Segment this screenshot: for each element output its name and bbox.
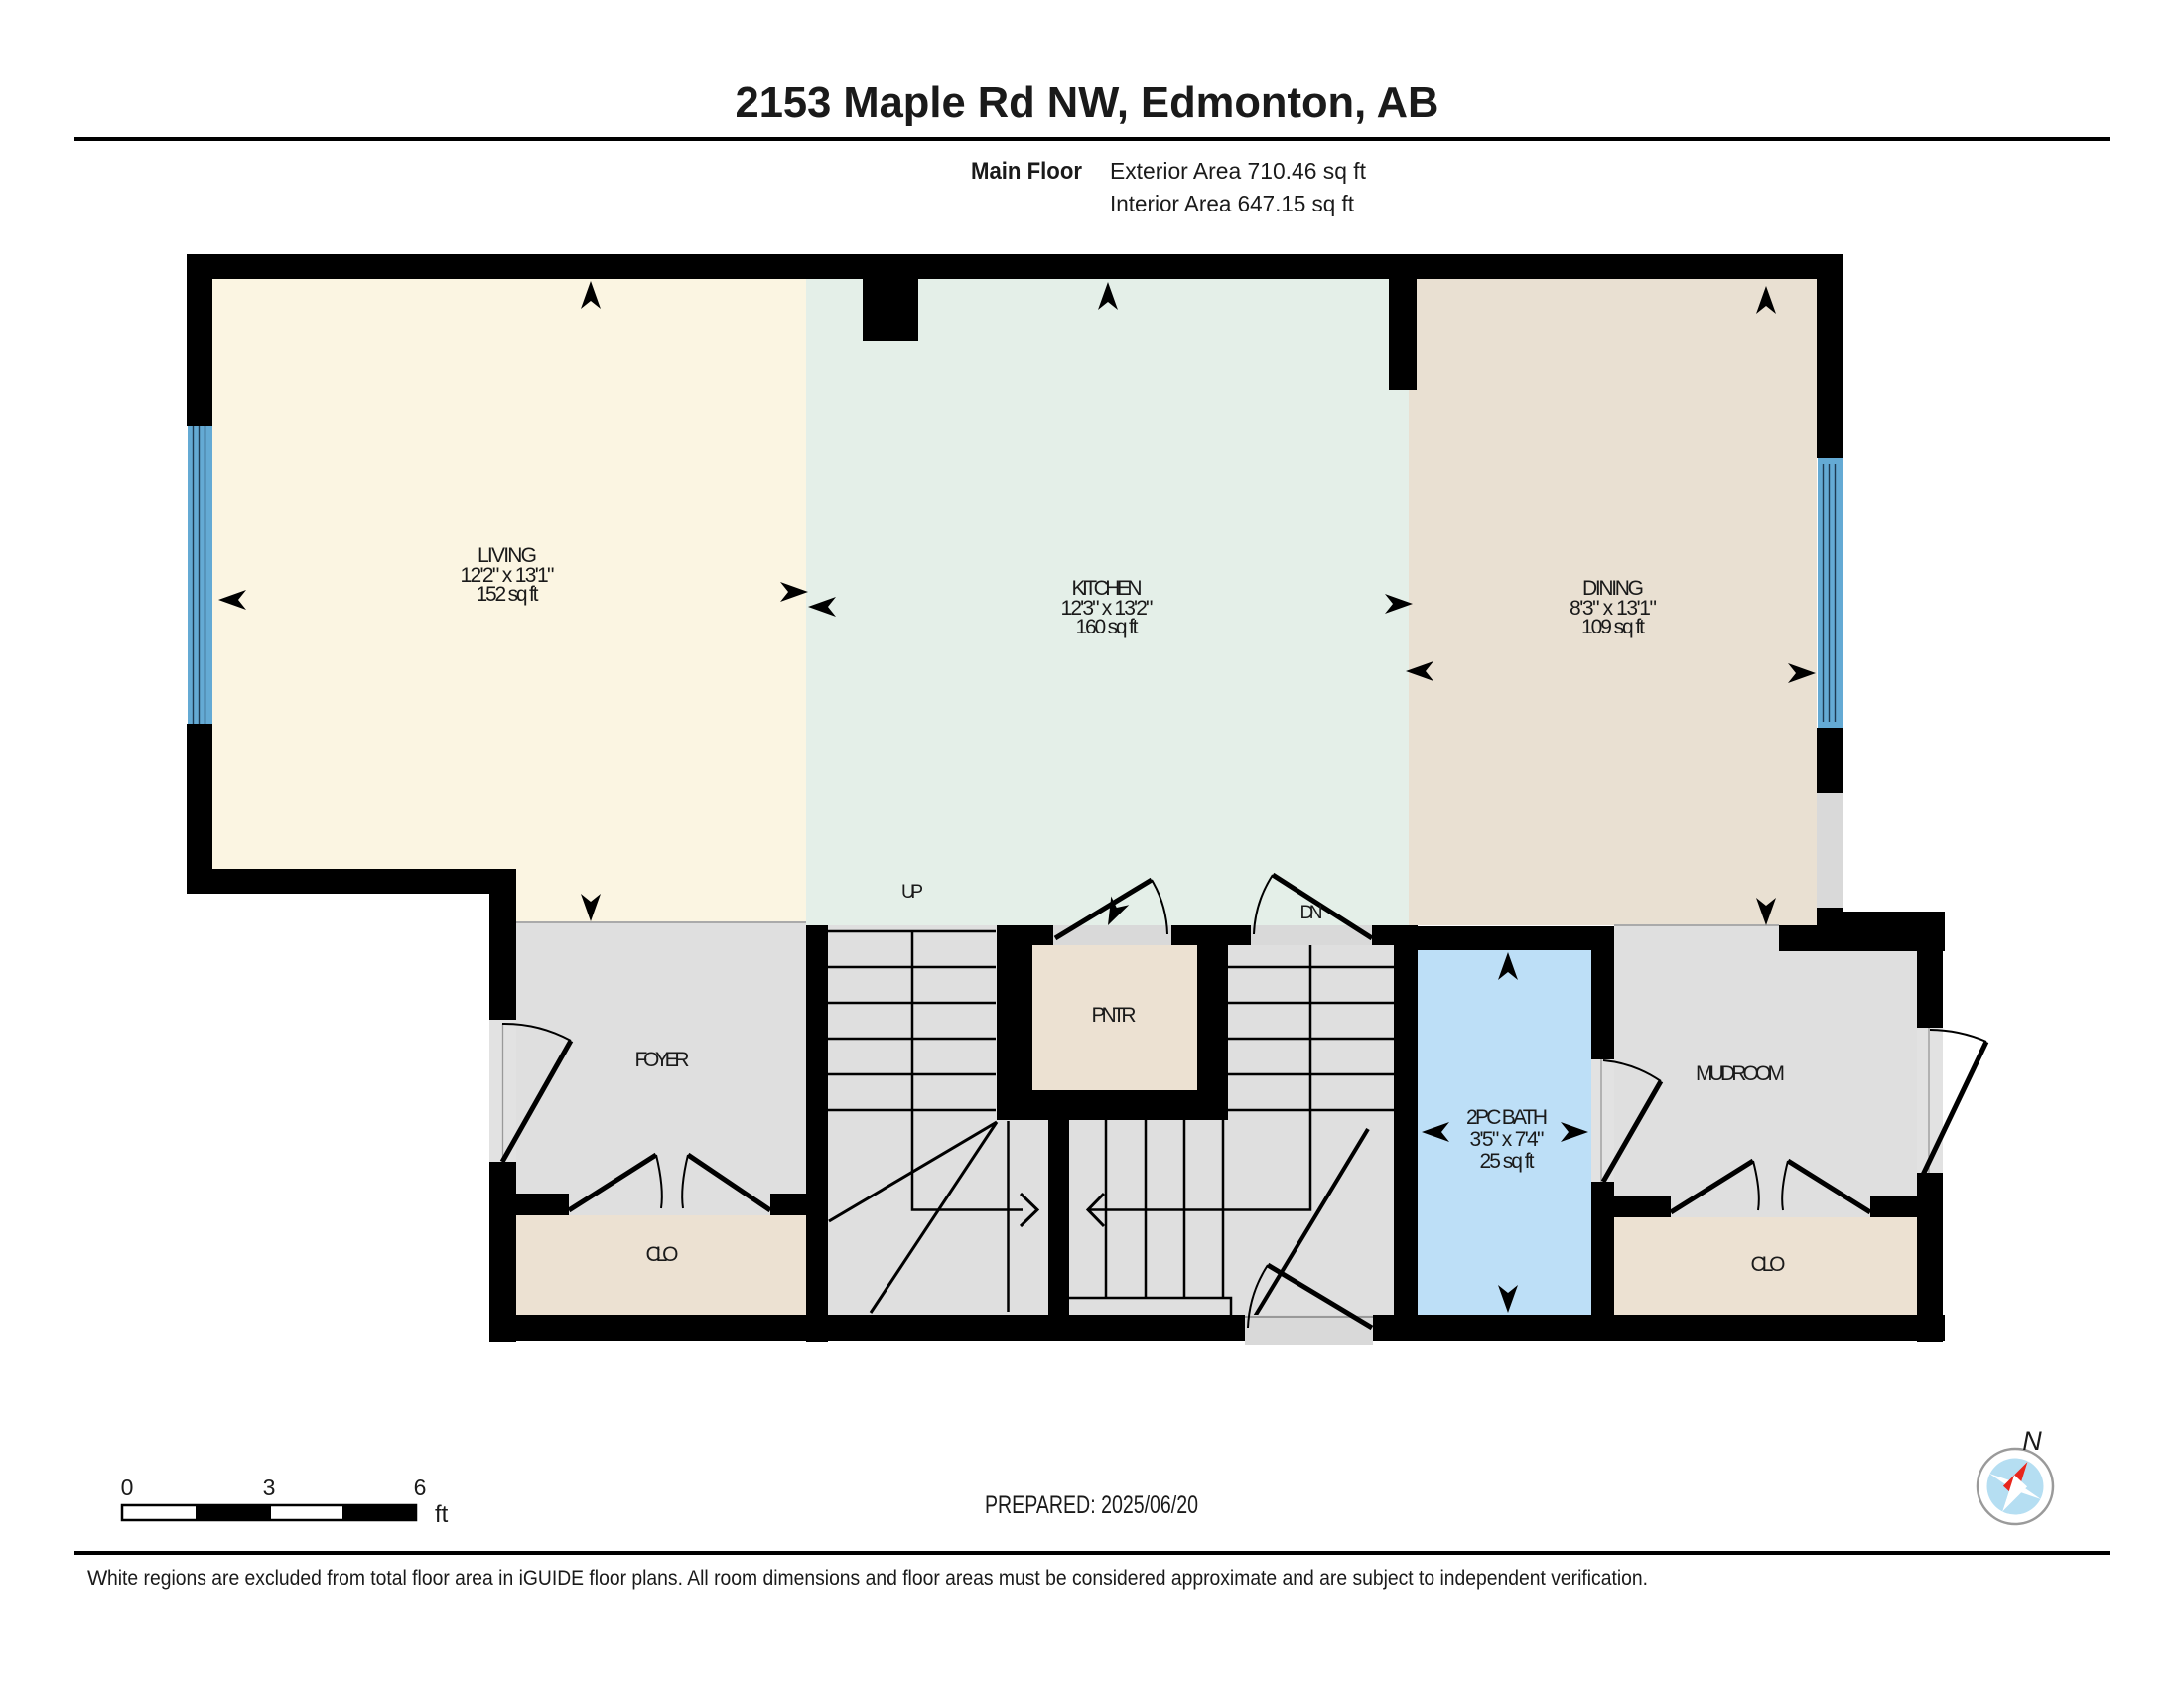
svg-text:2153 Maple Rd NW, Edmonton, AB: 2153 Maple Rd NW, Edmonton, AB [736,79,1439,127]
svg-text:MUDROOM: MUDROOM [1696,1062,1785,1085]
svg-text:6: 6 [414,1475,427,1500]
svg-text:ft: ft [435,1501,449,1528]
svg-text:CLO: CLO [1751,1253,1786,1276]
svg-text:UP: UP [901,882,923,903]
svg-text:CLO: CLO [646,1243,679,1266]
svg-text:2PC BATH: 2PC BATH [1466,1106,1548,1129]
svg-text:Exterior Area 710.46 sq ft: Exterior Area 710.46 sq ft [1110,158,1366,184]
svg-text:PNTR: PNTR [1092,1004,1137,1027]
svg-text:160 sq ft: 160 sq ft [1076,616,1139,638]
svg-text:DN: DN [1300,903,1323,923]
svg-text:152 sq ft: 152 sq ft [477,583,539,606]
svg-text:FOYER: FOYER [635,1049,690,1071]
svg-text:3: 3 [263,1475,276,1500]
svg-text:109 sq ft: 109 sq ft [1581,616,1645,638]
svg-text:25 sq ft: 25 sq ft [1480,1150,1535,1173]
svg-text:0: 0 [121,1475,134,1500]
svg-text:3'5" x 7'4": 3'5" x 7'4" [1470,1128,1545,1151]
svg-text:Interior Area 647.15 sq ft: Interior Area 647.15 sq ft [1110,191,1354,216]
svg-text:Main Floor: Main Floor [971,158,1082,185]
svg-text:hite regions are excluded from: hite regions are excluded from total flo… [107,1566,1648,1590]
svg-text:N: N [2022,1426,2042,1456]
svg-text:W: W [87,1566,108,1590]
svg-text:PREPARED: 2025/06/20: PREPARED: 2025/06/20 [985,1491,1198,1519]
